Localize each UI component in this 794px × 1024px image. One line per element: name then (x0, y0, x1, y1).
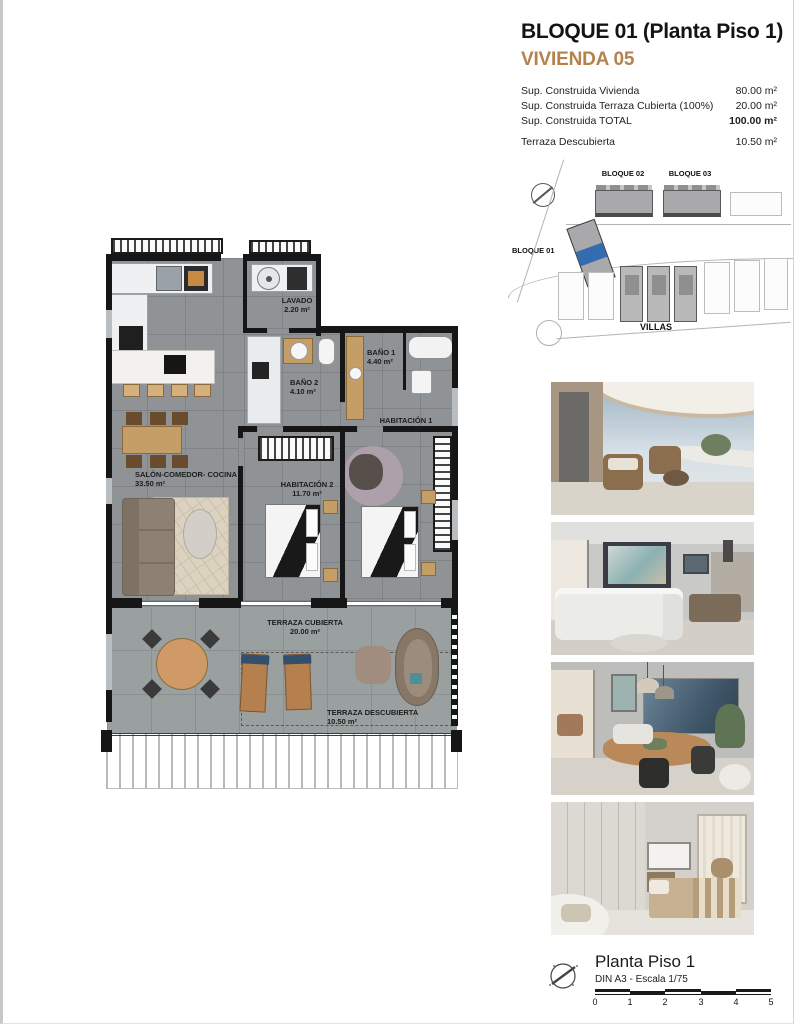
exterior-wall-detail (111, 238, 223, 254)
nightstand (323, 568, 338, 582)
scale-tick: 0 (592, 997, 597, 1007)
room-label-habitacion2: HABITACIÓN 2 11.70 m² (255, 480, 359, 498)
site-building-bloque03 (663, 190, 721, 217)
sun-lounger (240, 653, 269, 712)
site-label-bloque03: BLOQUE 03 (655, 169, 725, 178)
area-value: 10.50 m² (736, 135, 777, 150)
room-label-bano2: BAÑO 2 4.10 m² (290, 378, 318, 396)
site-villa (647, 266, 670, 322)
photo-striped-throw (693, 878, 741, 918)
photo-living-room (551, 522, 754, 655)
window (452, 500, 458, 540)
photo-coffee-table (611, 634, 667, 652)
room-label-lavado: LAVADO 2.20 m² (255, 296, 339, 314)
area-label: Terraza Descubierta (521, 135, 615, 150)
wall (243, 254, 320, 261)
site-building-bloque02 (595, 190, 653, 217)
photo-tray (561, 904, 591, 922)
photo-terrace-hint (557, 714, 583, 736)
site-villa-outline (704, 262, 730, 314)
site-villa-outline (764, 258, 788, 310)
oven-glow (188, 271, 204, 286)
plan-sheet: BLOQUE 01 (Planta Piso 1) VIVIENDA 05 Su… (0, 0, 794, 1024)
wall (106, 254, 221, 261)
page-title: BLOQUE 01 (Planta Piso 1) (521, 20, 777, 44)
wall (243, 254, 247, 332)
photo-hood (723, 540, 733, 562)
terrace-sofa (395, 628, 439, 706)
photo-balcony-chair (711, 858, 733, 878)
floor-void (320, 258, 344, 330)
coffee-table (183, 509, 217, 559)
wall (452, 326, 458, 610)
pillow (404, 511, 416, 538)
glass-door (241, 601, 311, 606)
photo-table (663, 470, 689, 486)
dining-chair (172, 412, 188, 425)
wall (106, 254, 112, 610)
room-label-habitacion1: HABITACIÓN 1 14.90 m² (351, 416, 461, 434)
room-label-terraza-descubierta: TERRAZA DESCUBIERTA 10.50 m² (327, 708, 418, 726)
bathroom2-vanity (283, 338, 313, 364)
window (106, 478, 112, 504)
wall (311, 598, 347, 608)
photo-chair (691, 746, 715, 774)
photo-bed (649, 878, 741, 918)
sink (290, 342, 308, 360)
photo-pendant-lamp (655, 686, 674, 699)
area-row: Sup. Construida Vivienda 80.00 m² (521, 84, 777, 99)
nightstand (421, 562, 436, 576)
bidet (411, 370, 432, 394)
dining-chair (150, 412, 166, 425)
kitchen-appliance (156, 266, 182, 291)
area-row-total: Sup. Construida TOTAL 100.00 m² (521, 114, 777, 129)
dining-table (122, 426, 182, 454)
sofa-cushion (404, 639, 432, 697)
terrace-railing (106, 733, 458, 789)
bar-stool (147, 384, 164, 397)
kitchen-sink-unit (119, 326, 143, 350)
scale-tick: 1 (627, 997, 632, 1007)
area-label: Sup. Construida TOTAL (521, 114, 632, 129)
photo-sofa (555, 588, 683, 640)
window (106, 310, 112, 338)
sofa (122, 498, 175, 596)
photo-pillow (649, 880, 669, 894)
photo-floor (551, 482, 754, 515)
photo-dining-set (689, 594, 741, 622)
sun-lounger (284, 654, 312, 711)
area-label: Sup. Construida Vivienda (521, 84, 639, 99)
dining-chair (126, 412, 142, 425)
scale-tick: 3 (698, 997, 703, 1007)
glass-door (142, 601, 199, 606)
photo-window (551, 670, 595, 758)
dwelling-subtitle: VIVIENDA 05 (521, 49, 777, 71)
site-villa-outline (588, 272, 614, 320)
bar-stool (171, 384, 188, 397)
site-road (566, 224, 791, 225)
site-plan: BLOQUE 02 BLOQUE 03 BLOQUE 01 VILLAS (508, 162, 793, 360)
railing-post (101, 730, 112, 752)
wall (441, 598, 458, 608)
wall (403, 332, 406, 390)
room-label-terraza-cubierta: TERRAZA CUBIERTA 20.00 m² (239, 618, 371, 636)
washer-door (266, 276, 272, 282)
photo-sofa-hint (613, 724, 653, 744)
site-villa (674, 266, 697, 322)
pillow (306, 543, 318, 571)
photo-artwork-small (683, 554, 709, 574)
bed (361, 506, 419, 578)
glass-door (347, 601, 441, 606)
window (106, 634, 112, 690)
photo-terrace-view (551, 382, 754, 515)
area-label: Sup. Construida Terraza Cubierta (100%) (521, 99, 713, 114)
wall (316, 254, 321, 336)
lounger-cushion (283, 655, 311, 665)
lounger-cushion (241, 654, 269, 664)
toilet (318, 338, 335, 365)
area-value: 100.00 m² (729, 114, 777, 129)
photo-tv-frame (647, 842, 691, 870)
scale-tick: 5 (768, 997, 773, 1007)
photo-artwork-small (611, 674, 637, 712)
teal-pillow (410, 673, 422, 684)
door-opening (257, 426, 283, 432)
photo-chair (639, 758, 669, 788)
photo-pendant-cord (663, 665, 664, 687)
scale-tick: 4 (733, 997, 738, 1007)
bathroom1-vanity (346, 336, 364, 420)
dining-chair (150, 455, 166, 468)
footer-title: Planta Piso 1 (595, 952, 695, 972)
bar-stool (123, 384, 140, 397)
pillow (306, 509, 318, 537)
compass-icon (545, 958, 581, 994)
wall (340, 330, 345, 606)
cooktop (164, 355, 186, 374)
area-row: Terraza Descubierta 10.50 m² (521, 135, 777, 150)
scale-bar (595, 989, 771, 995)
photo-cushion (608, 458, 638, 470)
footer-scale-note: DIN A3 - Escala 1/75 (595, 974, 688, 985)
photo-plant (715, 704, 745, 748)
site-villa-outline (734, 260, 760, 312)
room-label-bano1: BAÑO 1 4.40 m² (367, 348, 395, 366)
area-value: 20.00 m² (736, 99, 777, 114)
terrace-table (156, 638, 208, 690)
kitchen-island (111, 350, 215, 384)
kitchen-oven (184, 266, 208, 291)
photo-window (559, 392, 589, 484)
shower-fixture (252, 362, 269, 379)
nightstand (323, 500, 338, 514)
shower (247, 336, 281, 424)
site-building-neighbor (730, 192, 782, 216)
wall (106, 598, 142, 608)
railing-post (451, 730, 462, 752)
footer-titleblock: Planta Piso 1 DIN A3 - Escala 1/75 0 1 2… (543, 950, 783, 1010)
nightstand (421, 490, 436, 504)
terrace-wall (451, 608, 458, 726)
pillow (404, 544, 416, 571)
bar-stool (194, 384, 211, 397)
dining-chair (126, 455, 142, 468)
wardrobe (258, 436, 334, 461)
door-opening (238, 438, 243, 466)
photo-plant (701, 434, 731, 456)
highlighted-unit (576, 243, 607, 267)
site-villa-outline (558, 272, 584, 320)
floor-plan: LAVADO 2.20 m² BAÑO 2 4.10 m² BAÑO 1 4.4… (99, 232, 465, 794)
site-roundabout (536, 320, 562, 346)
washing-machine (257, 267, 280, 290)
photo-wicker-chair (603, 454, 643, 490)
photo-chair-white (719, 764, 751, 790)
area-table: Sup. Construida Vivienda 80.00 m² Sup. C… (521, 84, 777, 150)
sink (349, 367, 362, 380)
photo-bedroom (551, 802, 754, 935)
door-opening (267, 328, 289, 333)
area-value: 80.00 m² (736, 84, 777, 99)
photo-artwork (603, 542, 671, 588)
photo-artwork-canvas (608, 546, 666, 584)
dryer (287, 267, 307, 290)
bed (265, 504, 321, 578)
room-label-salon: SALÓN-COMEDOR- COCINA 33.50 m² (135, 470, 237, 488)
area-row: Sup. Construida Terraza Cubierta (100%) … (521, 99, 777, 114)
dining-chair (172, 455, 188, 468)
site-villa (620, 266, 643, 322)
wall (199, 598, 241, 608)
exterior-wall-detail (249, 240, 311, 254)
scale-numbers: 0 1 2 3 4 5 (595, 997, 771, 1009)
bathtub (408, 336, 453, 359)
photo-dining-room (551, 662, 754, 795)
scale-tick: 2 (662, 997, 667, 1007)
site-label-bloque02: BLOQUE 02 (588, 169, 658, 178)
terrace-side-table (355, 646, 391, 684)
header: BLOQUE 01 (Planta Piso 1) VIVIENDA 05 Su… (521, 20, 777, 150)
